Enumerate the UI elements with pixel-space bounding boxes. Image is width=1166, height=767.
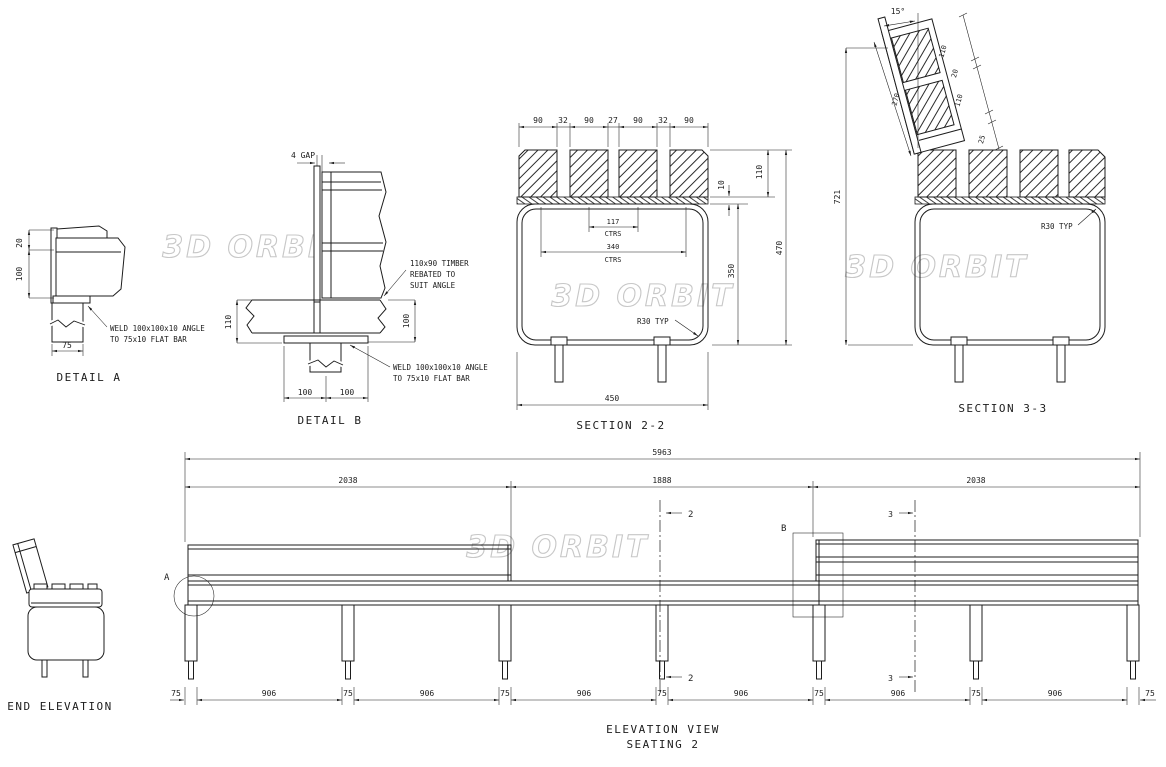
radius-note: R30 TYP [1041,222,1073,231]
dim-label: 32 [558,116,568,125]
timber-slat [969,150,1007,197]
dim-label: 75 [62,341,72,350]
watermark-text: 3D ORBIT [845,250,1028,285]
weld-note: WELD 100x100x10 ANGLE [393,363,488,372]
flat-bar [915,197,1105,204]
dim-label: 110 [954,93,965,107]
detail-b-view: 4 GAP 110 100 110x90 TIMBER R [224,151,488,427]
dim-label: 75 [814,689,824,698]
dim-label: 100 [15,267,24,282]
leg [1053,337,1069,345]
timber-note: SUIT ANGLE [410,281,456,290]
weld-note: TO 75x10 FLAT BAR [110,335,187,344]
dim-label: 450 [605,394,620,403]
dim-label: 20 [15,238,24,248]
dim-label: 906 [1048,689,1063,698]
dim-label: 25 [977,134,987,144]
dim-label: 2038 [966,476,985,485]
dim-label: 10 [717,180,726,190]
section-marker: 2 [688,674,693,684]
dim-label: 75 [971,689,981,698]
watermark-text: 3D ORBIT [466,530,649,565]
dim-label: 75 [1145,689,1155,698]
watermark-text: 3D ORBIT [551,279,734,314]
end-elevation-title: END ELEVATION [7,700,113,713]
dim-label: 350 [727,264,736,279]
dim-label: 90 [533,116,543,125]
timber-slat [570,150,608,197]
leg [813,605,825,661]
weld-note: WELD 100x100x10 ANGLE [110,324,205,333]
dim-label: 340 [607,243,620,251]
drawing-canvas: 3D ORBIT 3D ORBIT 3D ORBIT 3D ORBIT 20 1… [0,0,1166,767]
weld-note: TO 75x10 FLAT BAR [393,374,470,383]
detail-a-label: A [164,573,170,583]
timber-slat [1069,150,1105,197]
dim-label: 906 [262,689,277,698]
section-marker: 3 [888,674,893,683]
section-2-2-title: SECTION 2-2 [576,419,665,432]
timber-slat [619,150,657,197]
timber-note: 110x90 TIMBER [410,259,469,268]
leg [658,345,666,382]
dim-label: 32 [658,116,668,125]
leg [951,337,967,345]
radius-note: R30 TYP [637,317,669,326]
dim-label: CTRS [605,256,622,264]
section-marker: 3 [888,510,893,519]
leg [42,660,47,677]
leg [499,605,511,661]
watermark: 3D ORBIT 3D ORBIT 3D ORBIT 3D ORBIT [162,230,1028,565]
dim-label: CTRS [605,230,622,238]
dim-label: 1888 [652,476,671,485]
detail-a-title: DETAIL A [57,371,122,384]
leg [970,605,982,661]
timber-note: REBATED TO [410,270,456,279]
leg [955,345,963,382]
dim-label: 75 [171,689,181,698]
dim-label: 270 [891,92,902,106]
dim-label: 100 [402,314,411,329]
dim-label: 110 [755,165,764,180]
leg [656,605,668,661]
timber-slat [918,150,956,197]
dim-label: 721 [833,190,842,205]
detail-b-title: DETAIL B [298,414,363,427]
elevation-title: ELEVATION VIEW [606,723,720,736]
dim-label: 75 [657,689,667,698]
leg [555,345,563,382]
timber-slat [519,150,557,197]
flat-bar [517,197,708,204]
dim-label: 100 [298,388,313,397]
dim-label: 20 [950,68,960,78]
dim-label: 27 [608,116,618,125]
section-3-3-view: 15° 110 20 110 25 270 721 R30 TYP SECTIO… [833,5,1105,415]
dim-label: 75 [500,689,510,698]
leg [1057,345,1065,382]
dim-label: 15° [891,7,905,16]
leg [551,337,567,345]
section-marker: 2 [688,510,693,520]
elevation-view: 5963 2038 1888 2038 [164,448,1156,751]
leg [83,660,88,677]
backrest [878,5,964,154]
dim-label: 90 [633,116,643,125]
dim-label: 5963 [652,448,671,457]
leg [1127,605,1139,661]
timber-slat [1020,150,1058,197]
section-2-2-view: 90 32 90 27 90 32 90 117 CTRS 340 CTRS [517,116,792,432]
dim-label: 906 [734,689,749,698]
elevation-subtitle: SEATING 2 [626,738,699,751]
end-elevation-view: END ELEVATION [7,539,113,713]
dim-label: 90 [584,116,594,125]
detail-b-label: B [781,524,786,534]
dim-label: 4 GAP [291,151,315,160]
leg [342,605,354,661]
dim-label: 906 [891,689,906,698]
dim-label: 906 [577,689,592,698]
dim-label: 100 [340,388,355,397]
dim-label: 470 [775,241,784,256]
dim-label: 90 [684,116,694,125]
leg [185,605,197,661]
section-3-3-title: SECTION 3-3 [958,402,1047,415]
leg [654,337,670,345]
cad-drawing-page: 3D ORBIT 3D ORBIT 3D ORBIT 3D ORBIT 20 1… [0,0,1166,767]
dim-label: 2038 [338,476,357,485]
dim-label: 110 [224,315,233,330]
dim-label: 117 [607,218,620,226]
dim-label: 75 [343,689,353,698]
seat-module [188,545,511,581]
dim-label: 906 [420,689,435,698]
timber-slat [670,150,708,197]
